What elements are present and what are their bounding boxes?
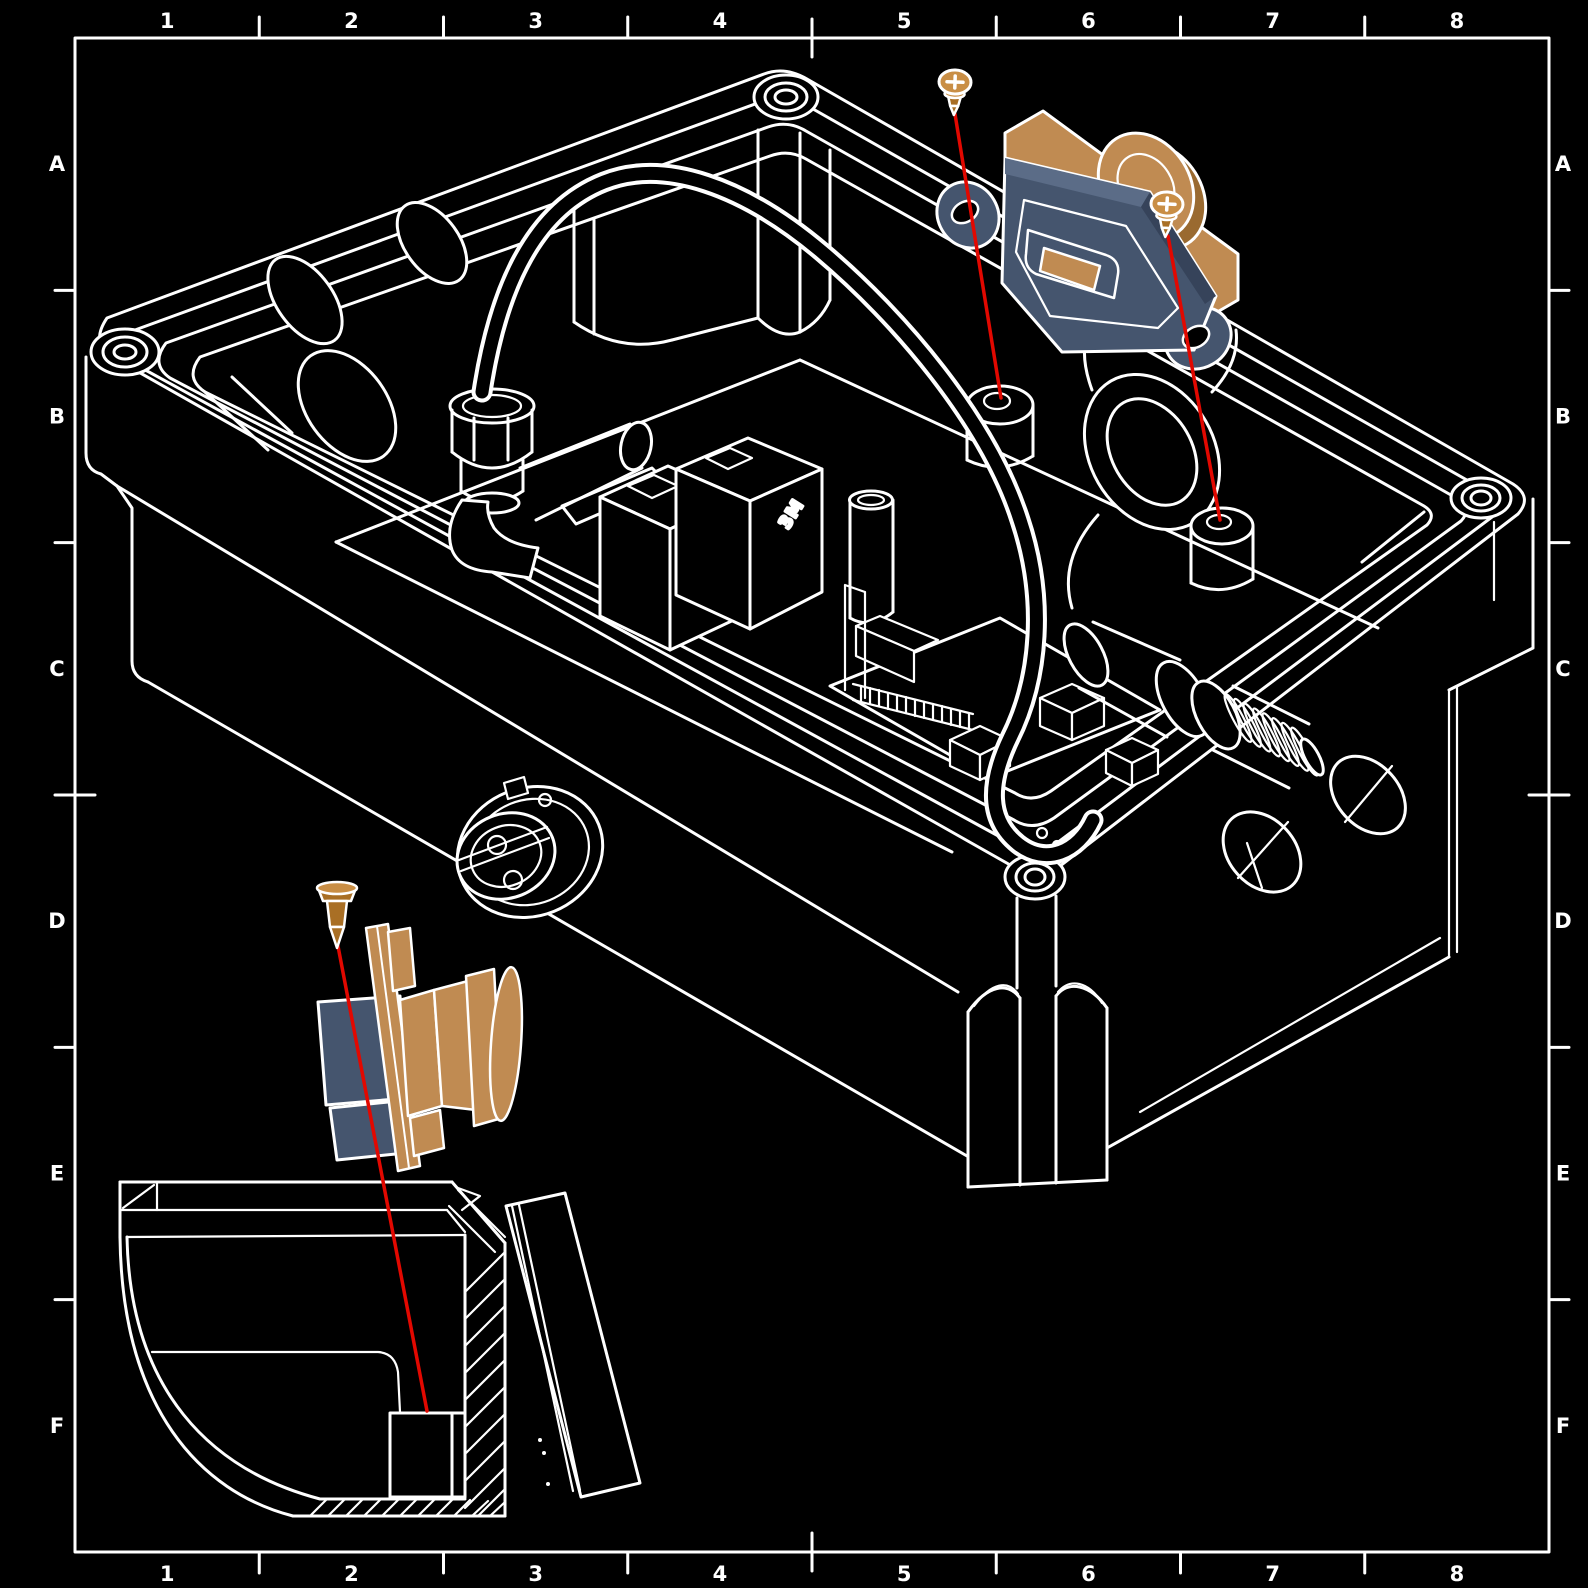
grid-label-top-2: 2 xyxy=(344,9,359,33)
mounting-screw-1 xyxy=(938,69,972,115)
grid-label-right-A: A xyxy=(1555,152,1572,176)
relay-block-2: 3M xyxy=(676,438,822,629)
standpipe-cylinder xyxy=(850,491,894,623)
grid-label-top-7: 7 xyxy=(1265,9,1280,33)
grid-label-right-E: E xyxy=(1556,1162,1570,1186)
grid-label-top-3: 3 xyxy=(528,9,543,33)
grid-label-top-5: 5 xyxy=(897,9,912,33)
grid-label-right-F: F xyxy=(1556,1414,1570,1438)
grid-label-left-D: D xyxy=(48,909,65,933)
grid-label-left-F: F xyxy=(50,1414,64,1438)
grid-label-top-4: 4 xyxy=(713,9,728,33)
grid-label-right-C: C xyxy=(1555,657,1570,681)
grid-label-left-C: C xyxy=(49,657,64,681)
seal-pin xyxy=(317,882,357,948)
left-wall-holes xyxy=(253,190,481,480)
standoff-boss-2 xyxy=(1191,508,1253,590)
grid-label-left-A: A xyxy=(49,152,66,176)
grid-label-bottom-2: 2 xyxy=(344,1562,359,1586)
grid-label-bottom-8: 8 xyxy=(1450,1562,1465,1586)
highlight-bracket-assembly xyxy=(925,111,1242,381)
leader-line-screw-1 xyxy=(955,114,1001,398)
pcb-connector-blocks xyxy=(950,684,1158,849)
cable-gland-fitting xyxy=(450,389,538,578)
grid-label-right-D: D xyxy=(1554,909,1571,933)
grid-label-bottom-7: 7 xyxy=(1265,1562,1280,1586)
grid-label-bottom-1: 1 xyxy=(160,1562,175,1586)
grid-label-bottom-6: 6 xyxy=(1081,1562,1096,1586)
grid-label-left-E: E xyxy=(50,1162,64,1186)
highlight-connector-assembly xyxy=(318,924,526,1171)
enclosure-assembly-drawing: 3M xyxy=(86,69,1533,1516)
round-panel-connector xyxy=(437,765,622,939)
grid-label-left-B: B xyxy=(49,405,65,429)
grid-label-top-6: 6 xyxy=(1081,9,1096,33)
grid-label-top-8: 8 xyxy=(1450,9,1465,33)
technical-drawing-svg: 1122334455667788AABBCCDDEEFF xyxy=(0,0,1588,1588)
grid-label-top-1: 1 xyxy=(160,9,175,33)
grid-label-bottom-3: 3 xyxy=(528,1562,543,1586)
grid-label-right-B: B xyxy=(1555,405,1571,429)
grid-label-bottom-4: 4 xyxy=(713,1562,728,1586)
section-detail xyxy=(120,1182,640,1516)
section-lid-panel xyxy=(506,1193,640,1497)
grid-label-bottom-5: 5 xyxy=(897,1562,912,1586)
drawing-sheet: 1122334455667788AABBCCDDEEFF xyxy=(0,0,1588,1588)
